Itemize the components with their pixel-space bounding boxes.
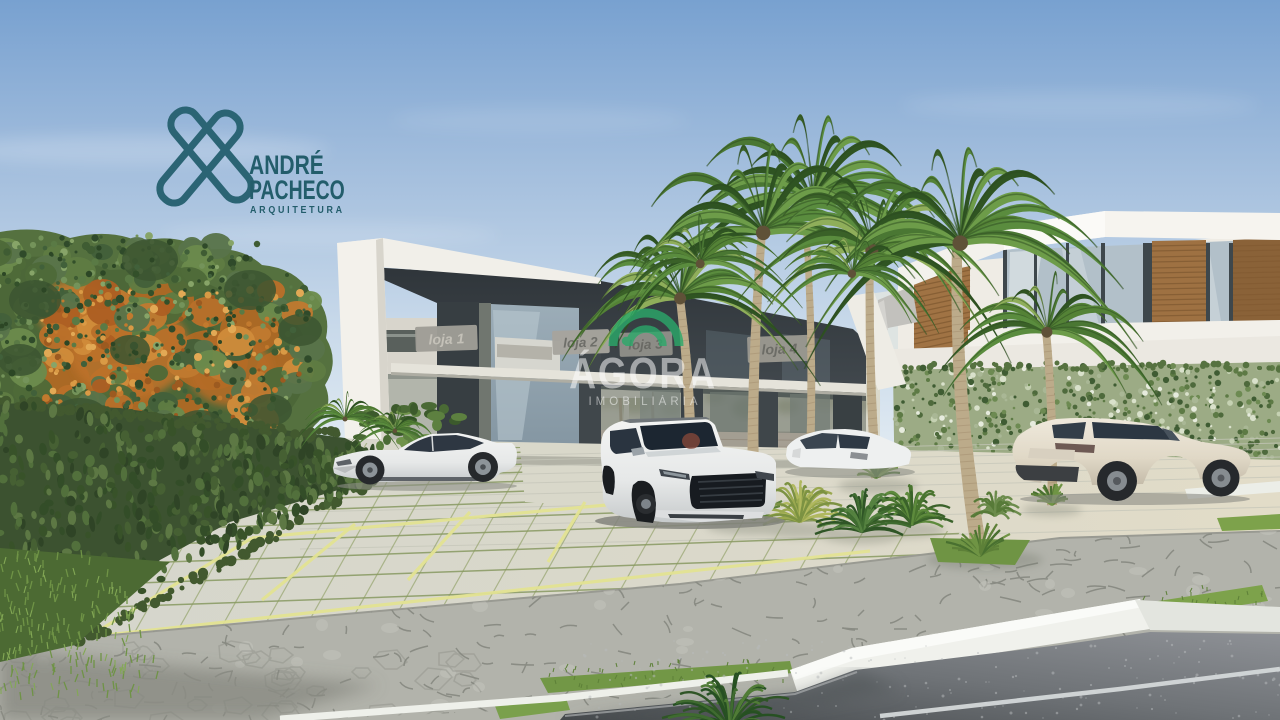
svg-text:PACHECO: PACHECO [249,175,345,205]
svg-text:loja 4: loja 4 [761,340,798,357]
svg-text:loja 1: loja 1 [428,330,465,347]
svg-text:IMOBILIÁRIA: IMOBILIÁRIA [588,395,701,408]
svg-text:ARQUITETURA: ARQUITETURA [250,204,345,216]
svg-text:ÁGORA: ÁGORA [569,348,717,398]
